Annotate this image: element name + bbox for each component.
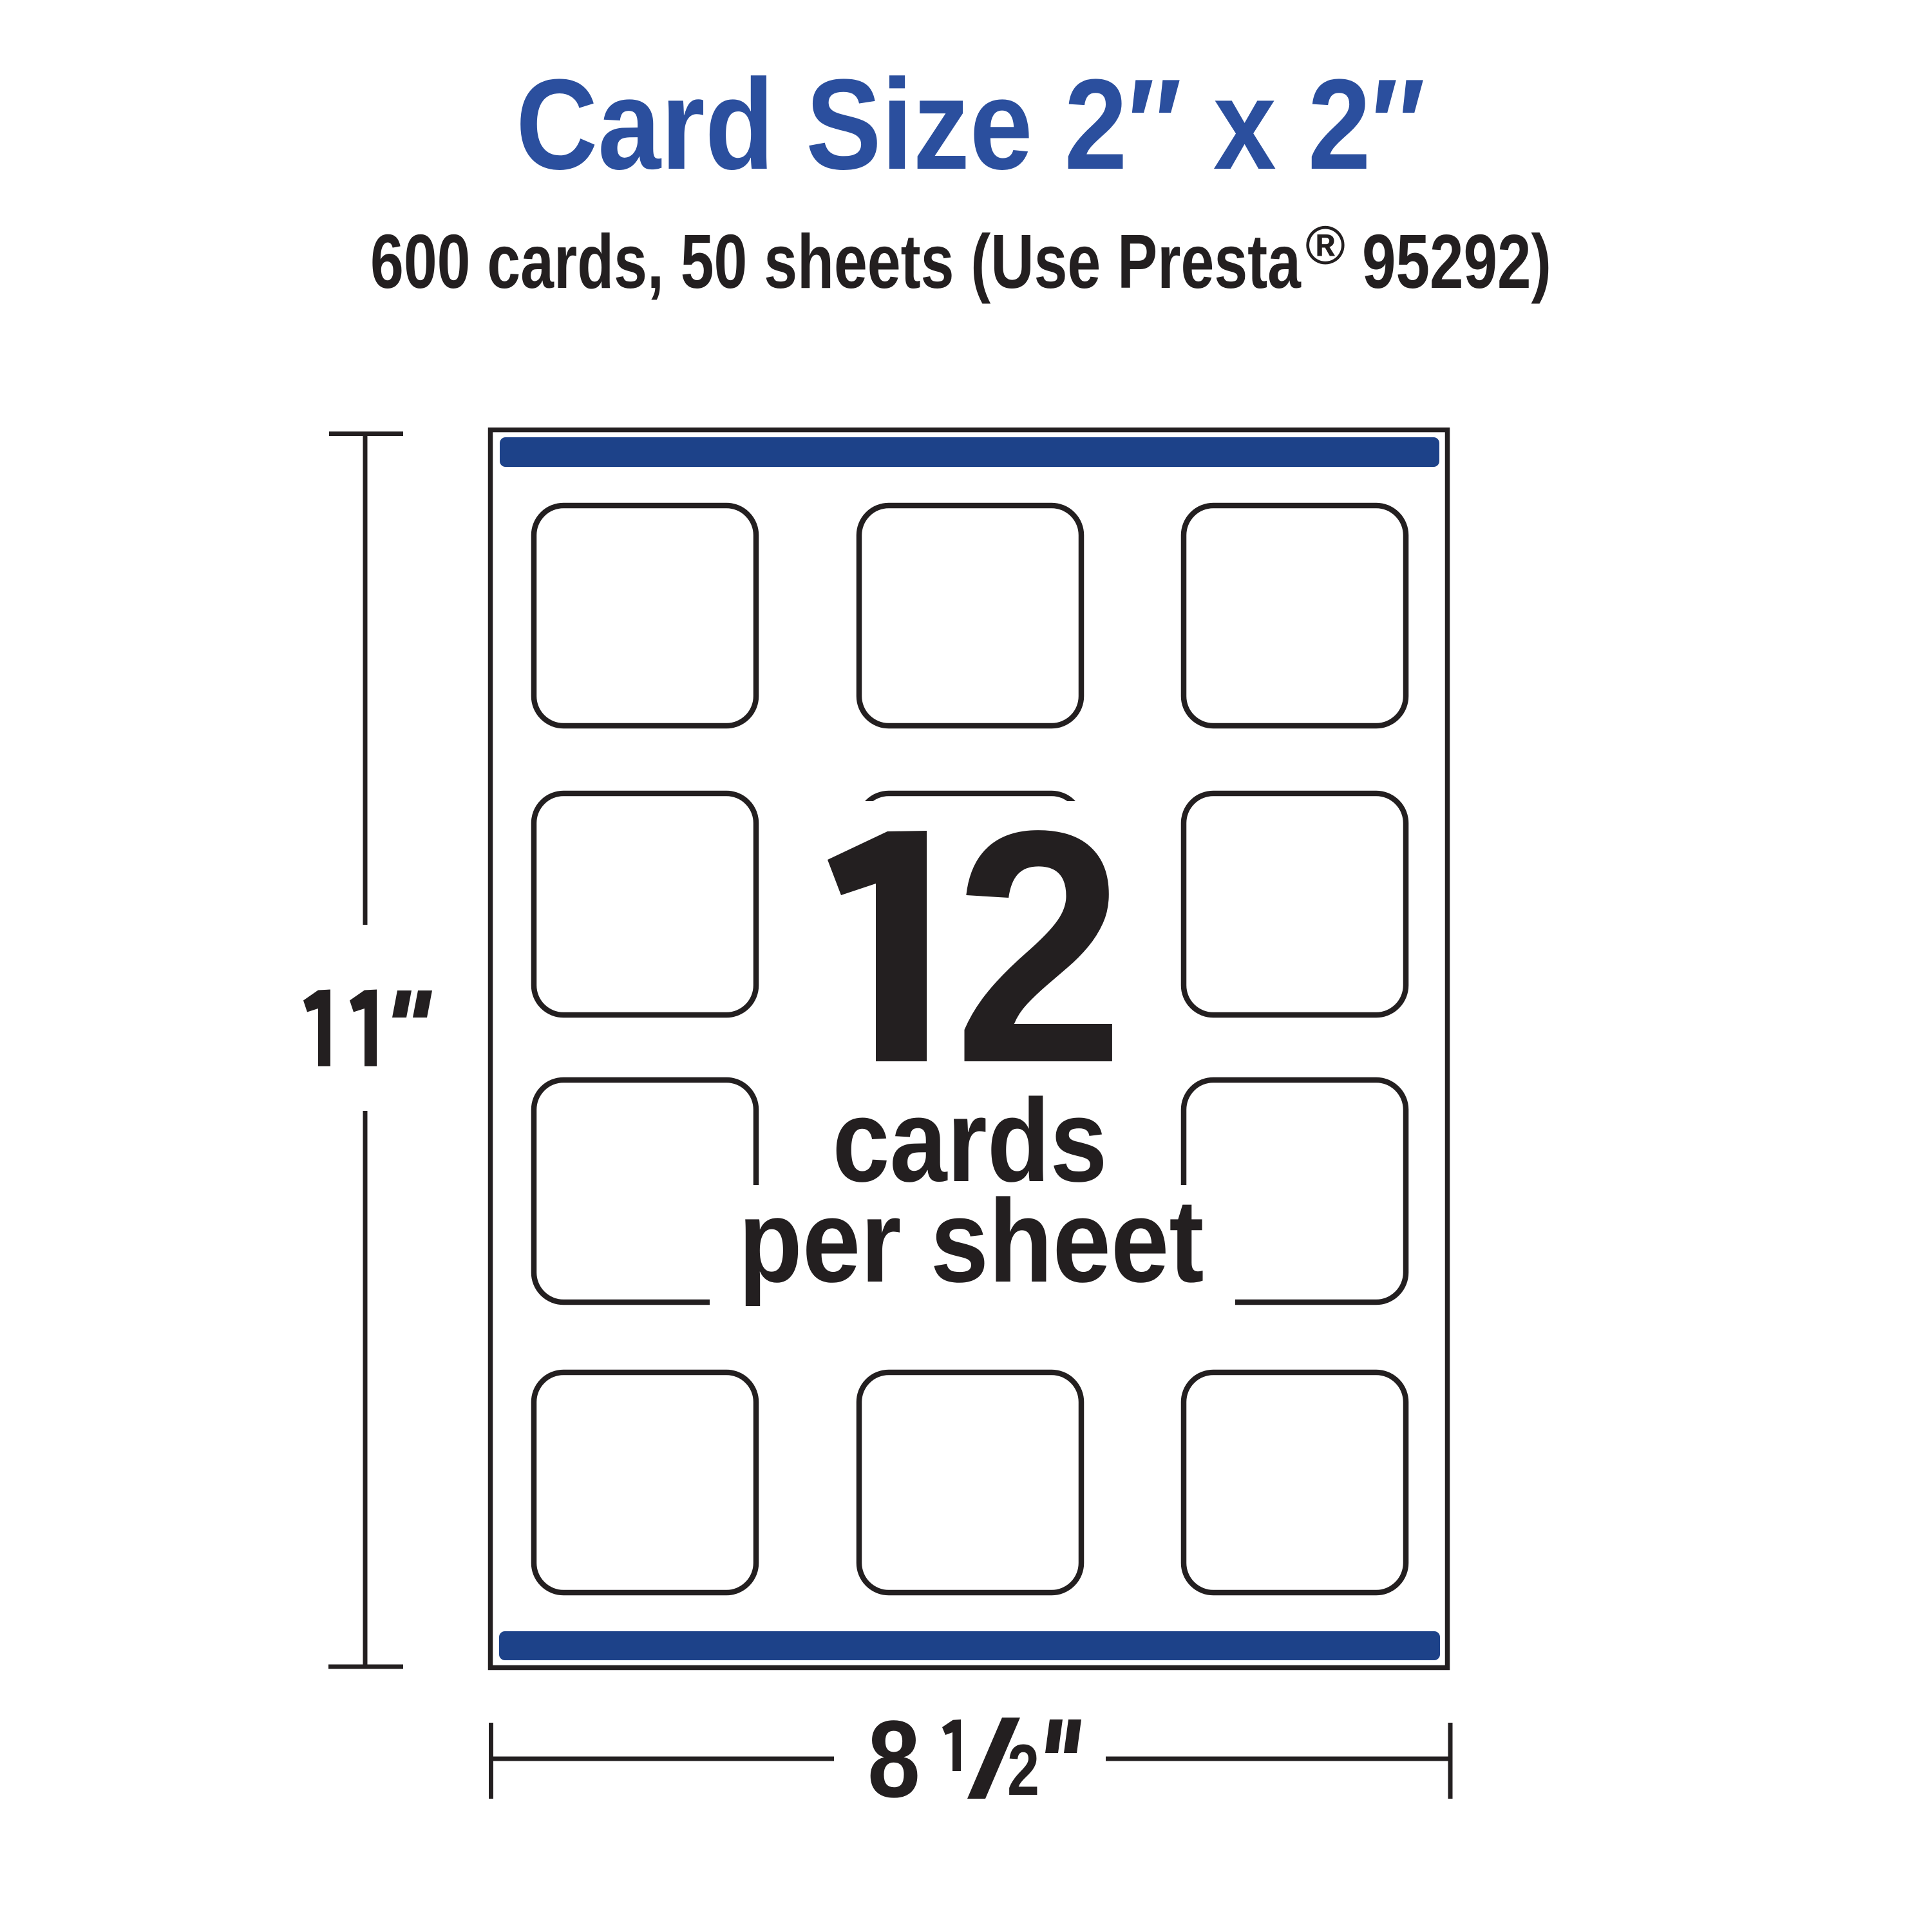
svg-text:per sheet: per sheet xyxy=(739,1175,1204,1307)
svg-text:8: 8 xyxy=(867,1698,920,1821)
svg-text:600 cards, 50 sheets (Use Pres: 600 cards, 50 sheets (Use Presta xyxy=(370,219,1302,305)
svg-text:Card Size 2″ x 2″: Card Size 2″ x 2″ xyxy=(516,53,1425,196)
svg-text:®: ® xyxy=(1305,215,1345,276)
svg-text:95292): 95292) xyxy=(1362,219,1551,305)
svg-text:2: 2 xyxy=(1007,1730,1039,1810)
